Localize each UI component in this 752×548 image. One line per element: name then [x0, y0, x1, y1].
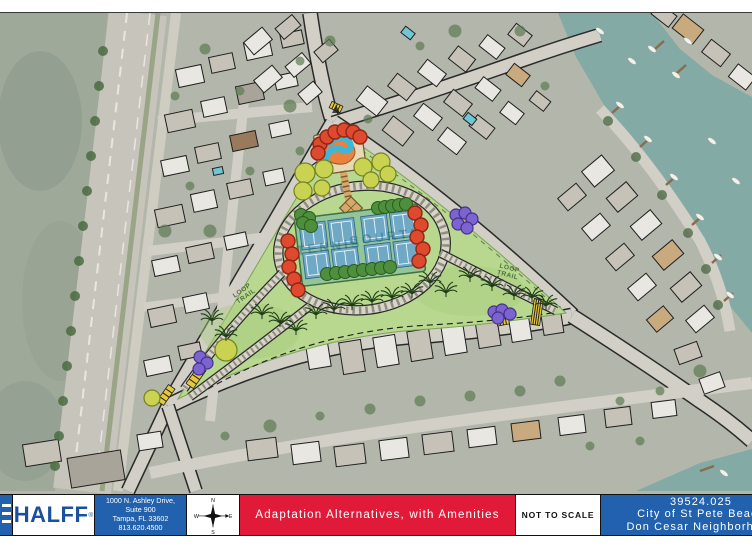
- project-info-box: 39524.025 City of St Pete Beach Don Cesa…: [601, 495, 752, 535]
- registered-mark: ®: [88, 512, 93, 519]
- halff-logo-mark: [0, 495, 12, 535]
- firm-address: 1000 N. Ashley Drive, Suite 900 Tampa, F…: [95, 495, 187, 535]
- aerial-photo: TENNIS COURTS LOOP TRAIL LOOP TRAIL: [0, 12, 752, 495]
- svg-text:S: S: [211, 530, 215, 535]
- plan-sheet: TENNIS COURTS LOOP TRAIL LOOP TRAIL HALF…: [0, 0, 752, 548]
- svg-text:E: E: [229, 514, 233, 520]
- firm-name: HALFF: [14, 504, 89, 526]
- svg-text:W: W: [194, 514, 199, 520]
- compass-rose: N S W E: [187, 495, 240, 535]
- client-line: City of St Pete Beach: [601, 508, 752, 520]
- svg-text:N: N: [211, 498, 215, 504]
- not-to-scale-badge: NOT TO SCALE: [516, 495, 601, 535]
- project-line: Don Cesar Neighborhood: [601, 521, 752, 533]
- title-block: HALFF® 1000 N. Ashley Drive, Suite 900 T…: [0, 494, 752, 536]
- address-line: 813.620.4500: [119, 524, 163, 533]
- compass-icon: N S W E: [192, 495, 234, 535]
- project-number: 39524.025: [601, 496, 752, 508]
- sheet-title: Adaptation Alternatives, with Amenities: [240, 495, 516, 535]
- halff-logo: HALFF®: [12, 495, 95, 535]
